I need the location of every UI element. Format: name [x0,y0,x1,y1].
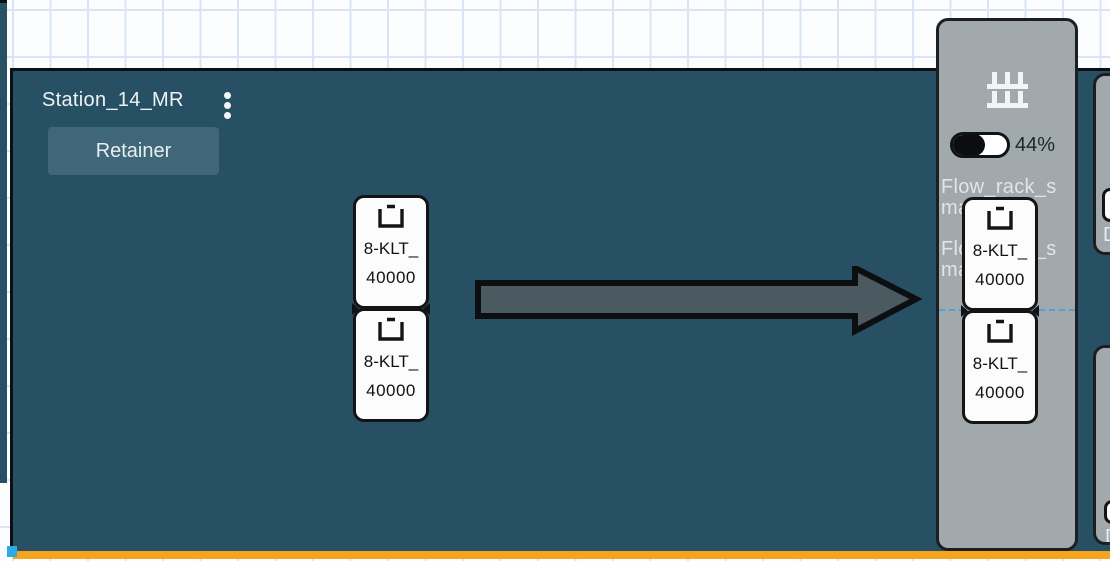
klt-label-line1: 8-KLT_ [364,352,419,372]
retainer-button[interactable]: Retainer [48,127,219,175]
resize-handle[interactable] [7,546,17,557]
clipped-rack-panel[interactable]: D [1093,345,1110,545]
stack-junction-notch [423,303,430,315]
layout-canvas[interactable]: Station_14_MR Retainer 8-KLT_ 40000 [0,0,1110,561]
clipped-panel-label: D [1105,526,1110,545]
kebab-dot [224,112,231,119]
clipped-klt-container[interactable] [1102,188,1110,222]
kebab-dot [224,92,231,99]
klt-container[interactable]: 8-KLT_ 40000 [962,310,1038,424]
klt-label-line1: 8-KLT_ [973,241,1028,261]
bin-icon [983,318,1017,350]
fill-level-slider[interactable] [950,132,1010,158]
slider-knob[interactable] [952,134,985,156]
stack-junction-notch [1032,305,1039,317]
bin-icon [374,203,408,235]
selection-accent-bar [13,551,1110,559]
kebab-menu-icon[interactable] [224,92,231,119]
flow-rack-icon [939,71,1075,114]
klt-label-line2: 40000 [366,381,416,401]
adjacent-station-edge [0,0,7,483]
kebab-dot [224,102,231,109]
fill-level-control: 44% [950,132,1055,158]
klt-label-line1: 8-KLT_ [973,354,1028,374]
klt-container[interactable]: 8-KLT_ 40000 [353,308,429,422]
klt-label-line2: 40000 [975,270,1025,290]
stack-junction-notch [961,305,968,317]
klt-label-line1: 8-KLT_ [364,239,419,259]
klt-label-line2: 40000 [366,268,416,288]
bin-icon [983,205,1017,237]
clipped-panel-label: D [1103,224,1110,247]
clipped-klt-container[interactable] [1104,500,1110,524]
stack-junction-notch [352,303,359,315]
arrow-right-icon[interactable] [465,266,925,336]
klt-stack-source[interactable]: 8-KLT_ 40000 8-KLT_ 40000 [353,195,429,422]
station-title: Station_14_MR [42,89,184,112]
klt-stack-target[interactable]: 8-KLT_ 40000 8-KLT_ 40000 [962,197,1038,424]
klt-container[interactable]: 8-KLT_ 40000 [353,195,429,309]
fill-percent-value: 44% [1015,134,1055,157]
bin-icon [374,316,408,348]
klt-label-line2: 40000 [975,383,1025,403]
flow-rack-panel[interactable]: 44% Flow_rack_sma Flow_rack_sma 8-KLT_ 4… [936,18,1078,551]
clipped-rack-panel[interactable]: D [1093,73,1110,255]
klt-container[interactable]: 8-KLT_ 40000 [962,197,1038,311]
